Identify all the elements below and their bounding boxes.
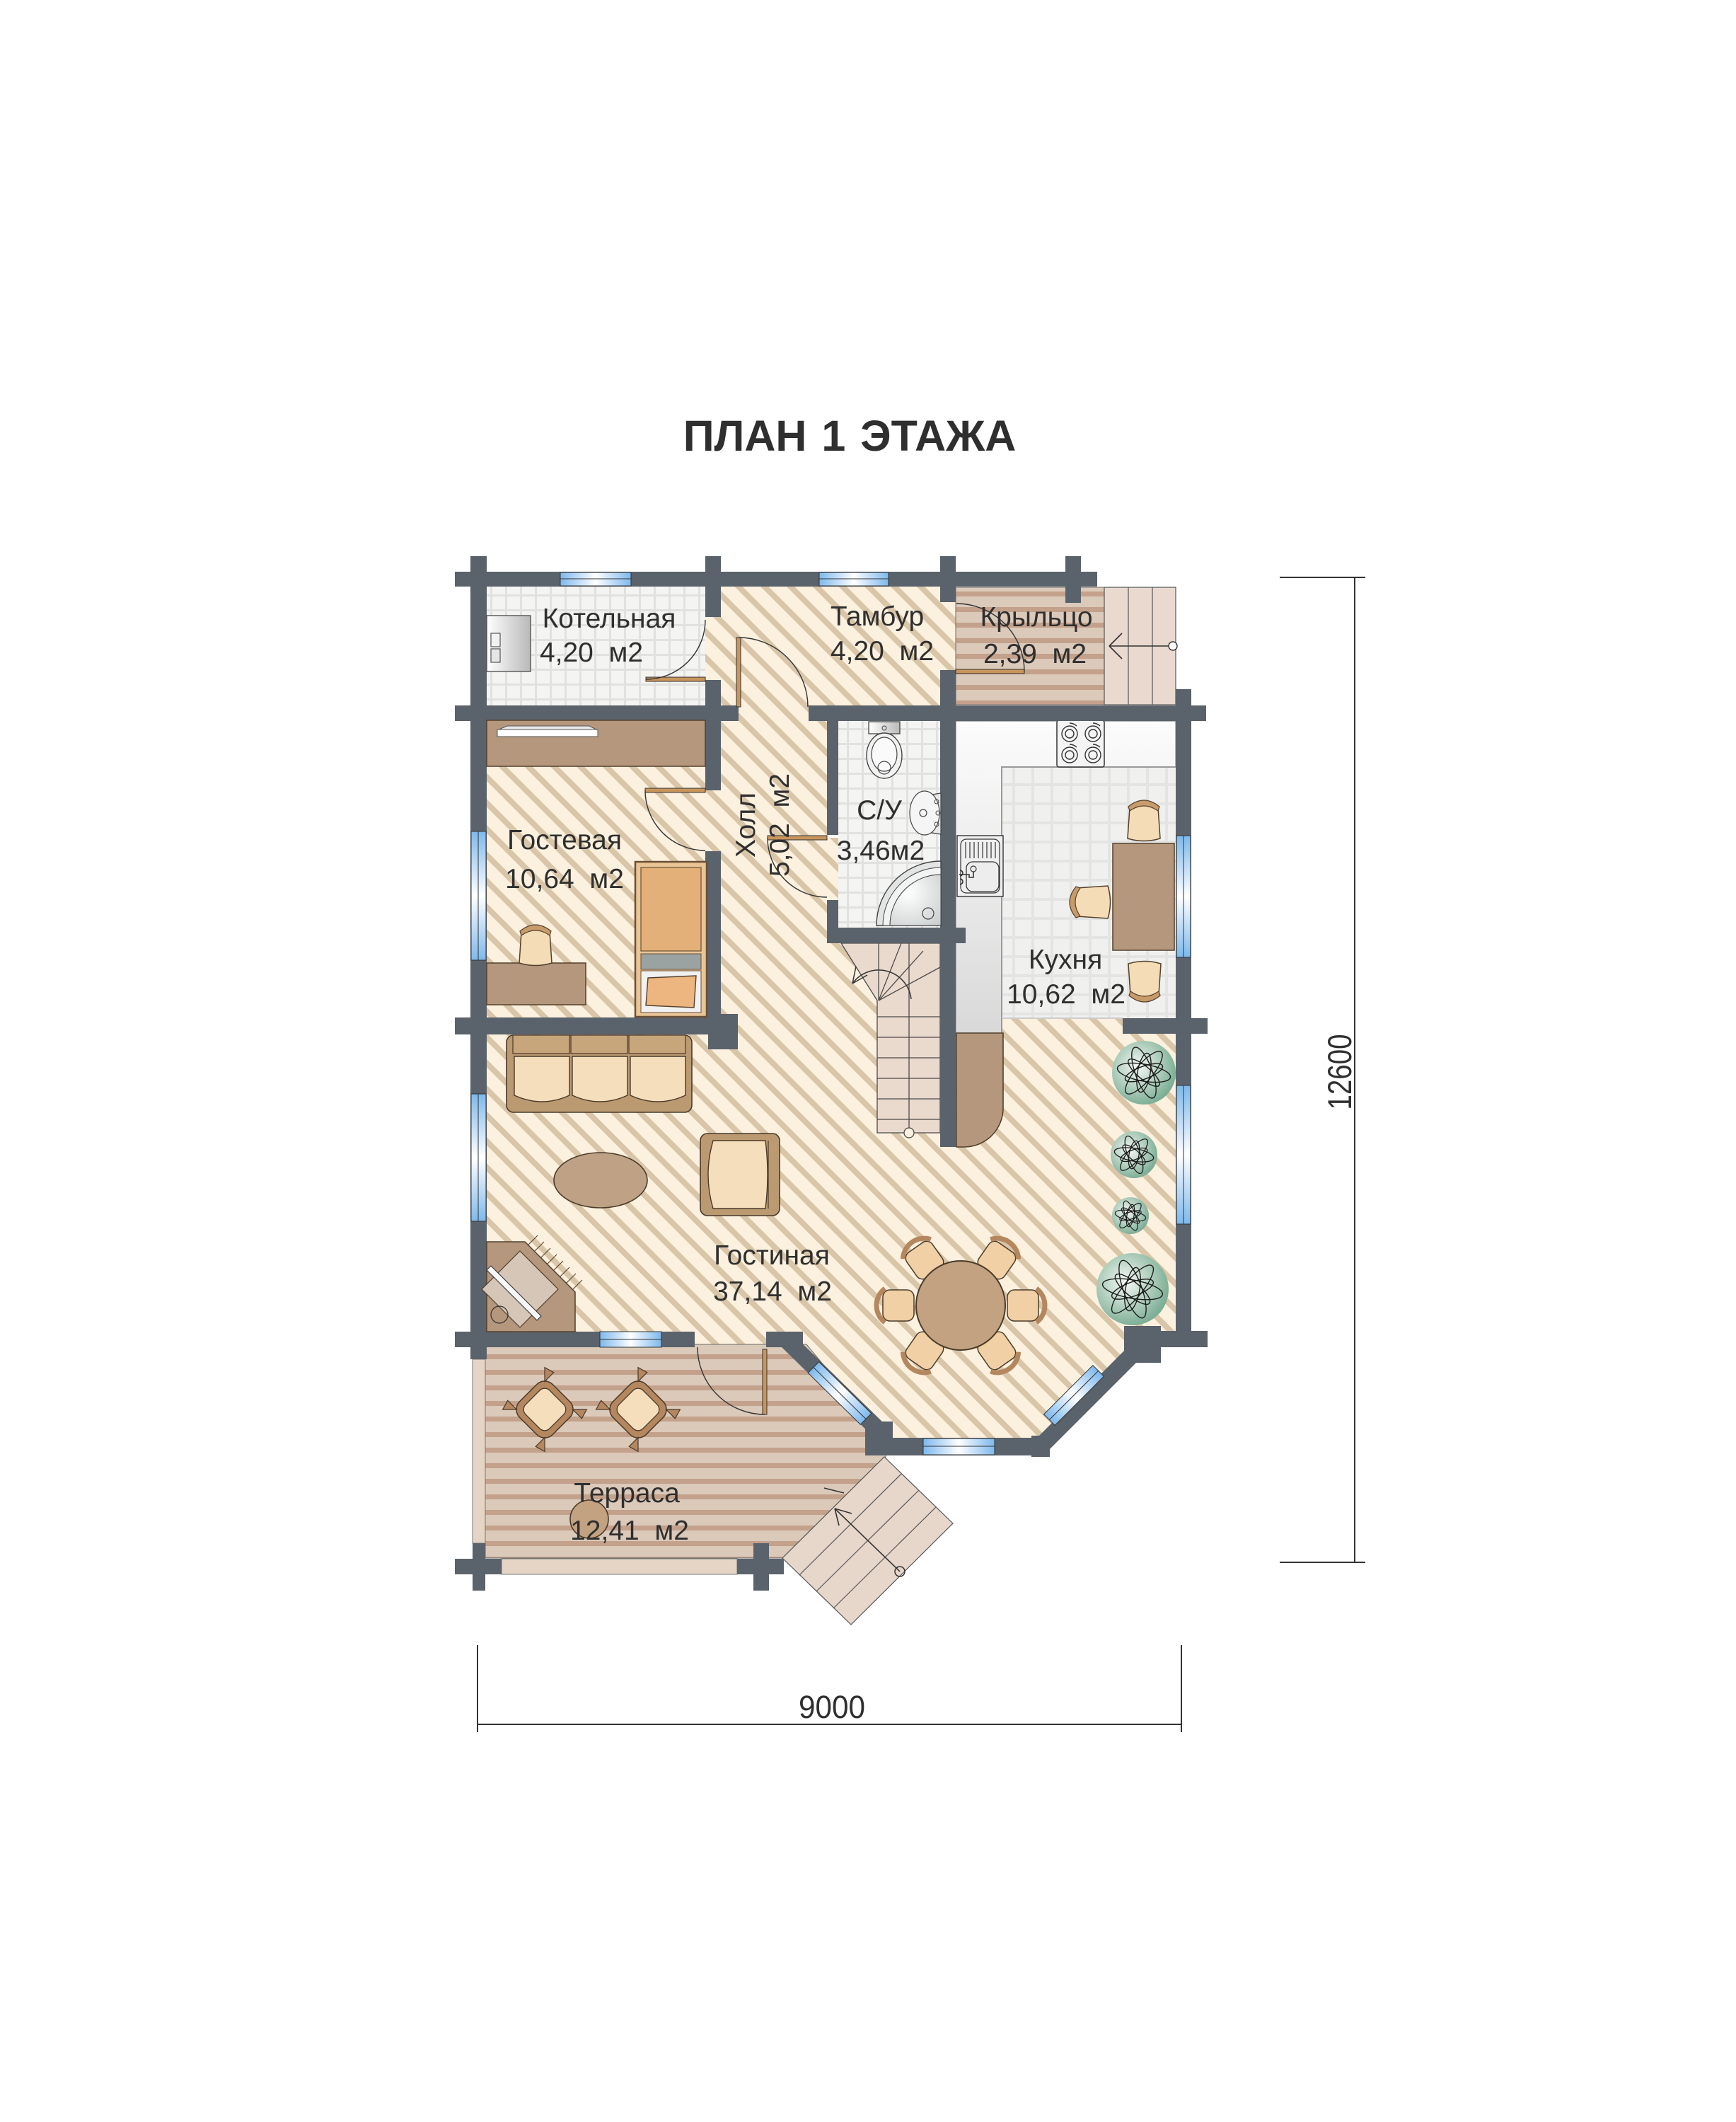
svg-text:37,14 м2: 37,14 м2 [713, 1276, 832, 1307]
svg-text:Гостевая: Гостевая [507, 825, 622, 855]
svg-text:Холл: Холл [731, 792, 761, 858]
svg-text:4,20 м2: 4,20 м2 [540, 638, 643, 668]
svg-text:12600: 12600 [1321, 1034, 1358, 1110]
svg-text:Котельная: Котельная [543, 604, 676, 634]
svg-text:3,46м2: 3,46м2 [837, 836, 925, 866]
svg-text:Тамбур: Тамбур [831, 601, 924, 632]
svg-text:Терраса: Терраса [574, 1478, 680, 1509]
svg-text:Кухня: Кухня [1029, 945, 1102, 975]
svg-text:Крыльцо: Крыльцо [980, 602, 1092, 633]
svg-text:10,62 м2: 10,62 м2 [1007, 979, 1125, 1010]
svg-text:2,39 м2: 2,39 м2 [983, 639, 1087, 669]
svg-text:4,20 м2: 4,20 м2 [831, 636, 934, 667]
svg-text:10,64 м2: 10,64 м2 [505, 864, 624, 894]
svg-text:ПЛАН 1 ЭТАЖА: ПЛАН 1 ЭТАЖА [683, 412, 1017, 460]
svg-text:12,41 м2: 12,41 м2 [570, 1516, 689, 1546]
svg-text:Гостиная: Гостиная [714, 1240, 830, 1271]
svg-text:9000: 9000 [799, 1689, 865, 1725]
svg-text:С/У: С/У [857, 795, 902, 826]
svg-text:5,02 м2: 5,02 м2 [765, 773, 795, 877]
